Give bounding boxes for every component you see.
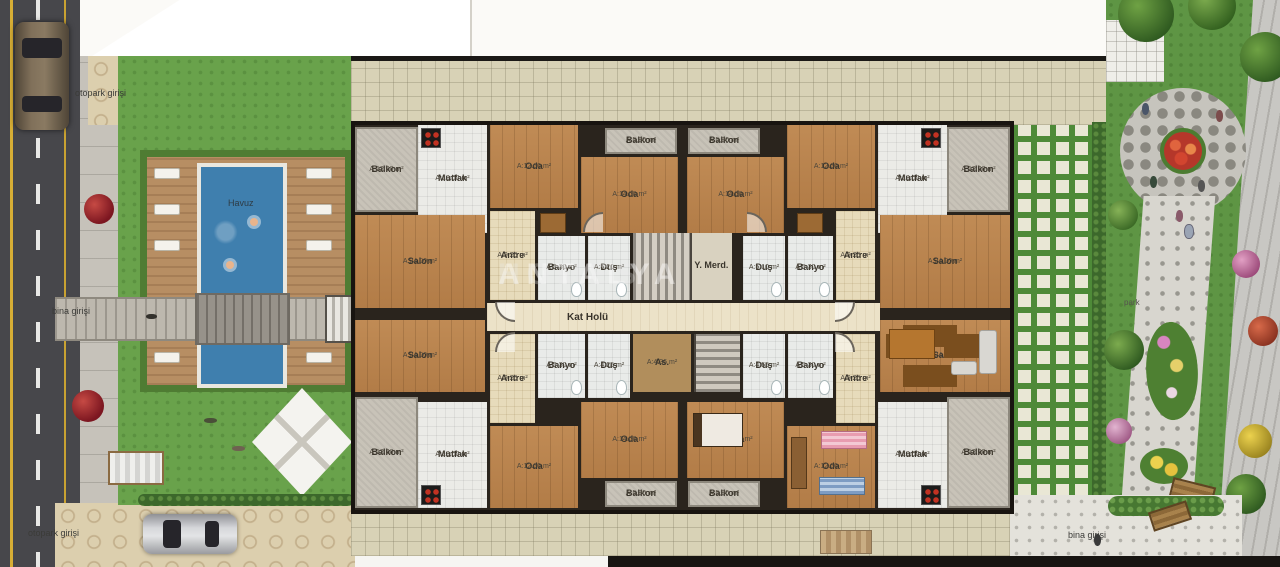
kids-bed-blue bbox=[819, 477, 865, 495]
terrace-top bbox=[351, 56, 1115, 125]
plaza-flower-bed bbox=[1160, 128, 1206, 174]
building-floor-plan: BalkonA:12.00 m²MutfakA:13.00 m²OdaA:12.… bbox=[351, 121, 1014, 514]
room-banyo: BanyoA:5.30 m² bbox=[788, 236, 833, 300]
bottom-edge bbox=[608, 556, 1280, 567]
room-oda: OdaA:12.00 m² bbox=[490, 426, 578, 508]
sun-lounger bbox=[306, 204, 332, 215]
double-bed bbox=[693, 413, 743, 447]
room-balkon: BalkonA:12.00 m² bbox=[355, 127, 418, 212]
person bbox=[1142, 103, 1149, 115]
person bbox=[232, 446, 245, 451]
sun-lounger bbox=[154, 168, 180, 179]
room-oda: OdaA:14.00 m² bbox=[687, 157, 784, 233]
pink-flower-bush bbox=[1106, 418, 1132, 444]
swimmer bbox=[250, 218, 258, 226]
room-du: DuşA:4.25 m² bbox=[588, 334, 630, 398]
stove-icon bbox=[421, 485, 441, 505]
car-on-street bbox=[15, 22, 69, 130]
room-du: DuşA:5.10 m² bbox=[743, 236, 785, 300]
stroller bbox=[1184, 224, 1194, 239]
bush bbox=[1108, 200, 1138, 230]
watermark-part2: HOMES bbox=[498, 258, 643, 292]
swimming-pool bbox=[197, 163, 287, 388]
kids-bed-pink bbox=[821, 431, 867, 449]
dining-table bbox=[889, 329, 935, 359]
sun-lounger bbox=[306, 352, 332, 363]
room-balkon: BalkonA:5.80 m² bbox=[605, 481, 677, 507]
label-parking-entrance-top: otopark girişi bbox=[75, 88, 126, 98]
room-oda: OdaA:12.00 m² bbox=[490, 125, 578, 208]
room-salon: SalonA:24.00 m² bbox=[880, 215, 1010, 308]
stove-icon bbox=[421, 128, 441, 148]
neighbour-building-edge bbox=[470, 0, 472, 56]
entrance-steps bbox=[325, 295, 353, 343]
stove-icon bbox=[921, 485, 941, 505]
garden-swing bbox=[108, 451, 164, 485]
room-oda: OdaA:14.00 m² bbox=[581, 402, 678, 478]
swimmer bbox=[226, 261, 234, 269]
sun-lounger bbox=[154, 352, 180, 363]
wardrobe bbox=[791, 437, 807, 489]
person-with-stroller bbox=[1176, 210, 1183, 222]
shade-sail bbox=[252, 388, 352, 496]
sun-lounger bbox=[154, 240, 180, 251]
sun-lounger bbox=[306, 240, 332, 251]
closet bbox=[797, 213, 823, 233]
site-plan: BalkonA:12.00 m²MutfakA:13.00 m²OdaA:12.… bbox=[0, 0, 1280, 567]
label-building-entrance-right: bina girişi bbox=[1068, 530, 1106, 540]
yellow-flower-bush bbox=[1238, 424, 1272, 458]
label-building-entrance-left: bina girişi bbox=[52, 306, 90, 316]
room-balkon: BalkonA:5.80 m² bbox=[688, 481, 760, 507]
ramp bbox=[820, 530, 872, 554]
room-balkon: BalkonA:5.80 m² bbox=[605, 128, 677, 154]
stairs-label: Y. Merd. bbox=[694, 260, 728, 270]
car-driveway-bottom bbox=[143, 514, 237, 554]
person bbox=[1198, 180, 1205, 192]
secondary-stairs bbox=[694, 334, 740, 392]
sofa bbox=[979, 330, 997, 374]
room-balkon: BalkonA:12.00 m² bbox=[947, 127, 1010, 212]
orange-flower-bush bbox=[1248, 316, 1278, 346]
grass-pavers bbox=[1012, 125, 1092, 503]
person bbox=[204, 418, 217, 423]
room-banyo: BanyoA:5.30 m² bbox=[788, 334, 833, 398]
elevator: As. A:4.36 m² bbox=[633, 334, 691, 392]
person bbox=[1150, 176, 1157, 188]
label-park: park bbox=[1124, 298, 1140, 307]
sun-lounger bbox=[306, 168, 332, 179]
label-pool: Havuz bbox=[228, 198, 254, 208]
room-banyo: BanyoA:5.30 m² bbox=[538, 334, 585, 398]
pool-bridge bbox=[195, 293, 290, 345]
hedge bbox=[138, 494, 354, 506]
room-du: DuşA:4.55 m² bbox=[743, 334, 785, 398]
floor-hall: Kat Holü bbox=[487, 303, 880, 331]
pink-flower-bush bbox=[1232, 250, 1260, 278]
label-parking-entrance-bottom: otopark girişi bbox=[28, 528, 79, 538]
road-yellow-line bbox=[10, 0, 13, 567]
stove-icon bbox=[921, 128, 941, 148]
room-balkon: BalkonA:5.80 m² bbox=[688, 128, 760, 154]
room-salon: SalonA:24.00 m² bbox=[355, 320, 485, 392]
room-balkon: BalkonA:12.00 m² bbox=[355, 397, 418, 508]
flower-bush bbox=[84, 194, 114, 224]
elevator-area: A:4.36 m² bbox=[647, 359, 677, 366]
room-balkon: BalkonA:12.00 m² bbox=[947, 397, 1010, 508]
room-oda: OdaA:12.00 m² bbox=[787, 125, 875, 208]
pool-garden bbox=[118, 56, 355, 505]
room-salon: SalonA:24.00 m² bbox=[355, 215, 485, 308]
room-antre: AntreA:9.25 m² bbox=[836, 211, 875, 300]
sofa bbox=[951, 361, 977, 375]
sun-lounger bbox=[154, 204, 180, 215]
closet bbox=[540, 213, 566, 233]
tree bbox=[1104, 330, 1144, 370]
flower-bush bbox=[72, 390, 104, 422]
person bbox=[146, 314, 157, 319]
person bbox=[1216, 110, 1223, 122]
